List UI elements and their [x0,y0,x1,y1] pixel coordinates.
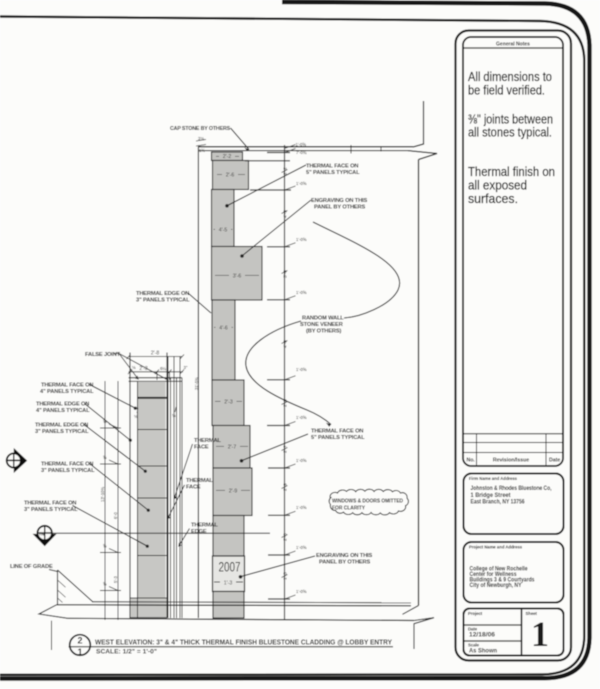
svg-text:1'-3: 1'-3 [224,580,233,586]
svg-text:4'-5: 4'-5 [219,228,228,234]
svg-text:FACE: FACE [186,485,201,491]
svg-text:1'-0⅝: 1'-0⅝ [296,505,307,510]
svg-text:THERMAL FACE ON: THERMAL FACE ON [311,429,363,435]
svg-text:RANDOM WALL: RANDOM WALL [302,316,344,322]
svg-text:3'-6: 3'-6 [233,274,242,280]
svg-text:2'-9: 2'-9 [283,483,289,491]
svg-text:Revision/Issue: Revision/Issue [493,458,529,464]
svg-text:1'-0⅝: 1'-0⅝ [296,589,307,594]
svg-text:be field verified.: be field verified. [468,83,545,98]
svg-text:5" PANELS TYPICAL: 5" PANELS TYPICAL [311,435,365,441]
svg-text:4'-6: 4'-6 [219,326,228,332]
svg-text:THERMAL EDGE ON: THERMAL EDGE ON [35,423,88,429]
svg-text:1'-3: 1'-3 [283,572,289,580]
svg-text:1: 1 [77,647,82,657]
svg-text:CAP STONE BY OTHERS: CAP STONE BY OTHERS [170,126,230,132]
svg-text:⅝: ⅝ [103,544,107,549]
svg-text:4'-5: 4'-5 [283,210,289,218]
svg-text:STONE VENEER: STONE VENEER [300,322,343,328]
svg-text:East Branch, NY 13756: East Branch, NY 13756 [471,499,525,506]
svg-text:FOR CLARITY: FOR CLARITY [332,506,365,512]
svg-text:WINDOWS & DOORS OMITTED: WINDOWS & DOORS OMITTED [332,499,403,505]
svg-text:THERMAL: THERMAL [194,438,221,444]
svg-text:⅝: ⅝ [103,455,107,460]
svg-text:2'-7: 2'-7 [228,445,237,451]
svg-text:FALSE JOINT: FALSE JOINT [85,352,121,358]
svg-text:1'-0⅝: 1'-0⅝ [296,237,307,242]
svg-text:1'-0⅝: 1'-0⅝ [296,142,307,147]
svg-text:2'-2: 2'-2 [223,154,232,160]
svg-text:1'-0⅝: 1'-0⅝ [296,458,307,463]
svg-text:General Notes: General Notes [496,42,530,48]
svg-text:1'-0⅝: 1'-0⅝ [296,290,307,295]
svg-text:12/18/06: 12/18/06 [469,632,495,639]
svg-text:THERMAL EDGE ON: THERMAL EDGE ON [136,291,189,297]
svg-text:4'-6: 4'-6 [283,340,289,348]
svg-text:13'-10¾: 13'-10¾ [100,486,105,502]
svg-text:ENGRAVING ON THIS: ENGRAVING ON THIS [316,553,372,559]
svg-text:SCALE: 1/2" = 1'-0": SCALE: 1/2" = 1'-0" [96,649,157,656]
svg-text:4" PANELS TYPICAL: 4" PANELS TYPICAL [36,408,90,414]
svg-text:1: 1 [531,614,549,654]
svg-text:THERMAL: THERMAL [191,523,218,529]
svg-text:Project Name and Address: Project Name and Address [469,545,523,550]
svg-text:No.: No. [467,458,476,464]
svg-text:THERMAL EDGE ON: THERMAL EDGE ON [36,402,89,408]
svg-text:3": 3" [184,365,188,370]
svg-text:7'-0¾: 7'-0¾ [296,150,307,155]
svg-text:PANEL BY OTHERS: PANEL BY OTHERS [314,205,366,211]
svg-text:As Shown: As Shown [469,648,497,655]
svg-text:LINE OF GRADE: LINE OF GRADE [10,564,53,570]
svg-text:PANEL BY OTHERS: PANEL BY OTHERS [319,560,371,566]
svg-text:31'-5¾: 31'-5¾ [194,377,199,390]
svg-text:4" PANELS TYPICAL: 4" PANELS TYPICAL [40,389,94,395]
svg-text:WEST ELEVATION: 3" & 4" THICK: WEST ELEVATION: 3" & 4" THICK THERMAL FI… [95,638,392,647]
svg-text:3⅛: 3⅛ [198,136,204,141]
svg-text:2'-6: 2'-6 [226,173,235,179]
svg-text:6'-0: 6'-0 [113,511,118,519]
svg-text:3" PANELS TYPICAL: 3" PANELS TYPICAL [24,507,78,513]
svg-text:1½: 1½ [199,148,205,153]
svg-text:3'-6: 3'-6 [283,270,289,278]
svg-text:THERMAL FACE ON: THERMAL FACE ON [41,462,93,468]
svg-text:THERMAL: THERMAL [186,478,213,484]
svg-text:all stones typical.: all stones typical. [468,125,552,140]
svg-text:THERMAL FACE ON: THERMAL FACE ON [306,164,358,170]
svg-text:(BY OTHERS): (BY OTHERS) [306,329,341,335]
svg-text:⅛: ⅛ [134,414,138,419]
svg-text:3" PANELS TYPICAL: 3" PANELS TYPICAL [41,468,95,474]
svg-text:surfaces.: surfaces. [468,191,518,206]
svg-text:1'-0⅝: 1'-0⅝ [296,181,307,186]
svg-text:2'-8: 2'-8 [151,351,160,357]
svg-text:3" PANELS TYPICAL: 3" PANELS TYPICAL [136,298,190,304]
svg-text:≈N: ≈N [39,532,44,537]
svg-text:2'-2: 2'-2 [283,167,289,175]
svg-text:1'-0⅝: 1'-0⅝ [296,367,307,372]
svg-text:ENGRAVING ON THIS: ENGRAVING ON THIS [311,198,367,204]
svg-text:Johnston & Rhodes Bluestone Co: Johnston & Rhodes Bluestone Co, [471,485,552,492]
svg-text:THERMAL FACE ON: THERMAL FACE ON [41,383,93,389]
svg-text:THERMAL FACE ON: THERMAL FACE ON [24,501,76,507]
svg-text:⅛: ⅛ [172,413,176,418]
svg-text:Firm Name and Address: Firm Name and Address [469,476,518,481]
svg-text:Date: Date [549,458,560,464]
svg-text:EDGE: EDGE [191,529,207,535]
svg-text:⅝: ⅝ [103,582,107,587]
svg-text:2'-9: 2'-9 [229,489,238,495]
svg-text:City of Newburgh, NY: City of Newburgh, NY [470,582,523,589]
svg-text:2'-7: 2'-7 [283,445,289,453]
svg-text:5" PANELS TYPICAL: 5" PANELS TYPICAL [306,170,360,176]
svg-text:2007: 2007 [219,560,241,575]
svg-text:5'-3: 5'-3 [113,575,118,583]
svg-text:⅛: ⅛ [132,365,136,370]
svg-text:2'-3: 2'-3 [224,400,233,406]
svg-text:FACE: FACE [194,445,209,451]
svg-text:2'-6: 2'-6 [283,533,289,541]
svg-text:Project: Project [468,611,483,616]
svg-text:6¼: 6¼ [160,366,166,371]
svg-text:2: 2 [77,636,82,646]
svg-text:1'-0⅝: 1'-0⅝ [296,415,307,420]
svg-text:3" PANELS TYPICAL: 3" PANELS TYPICAL [35,429,89,435]
svg-text:1'-0⅝: 1'-0⅝ [296,545,307,550]
